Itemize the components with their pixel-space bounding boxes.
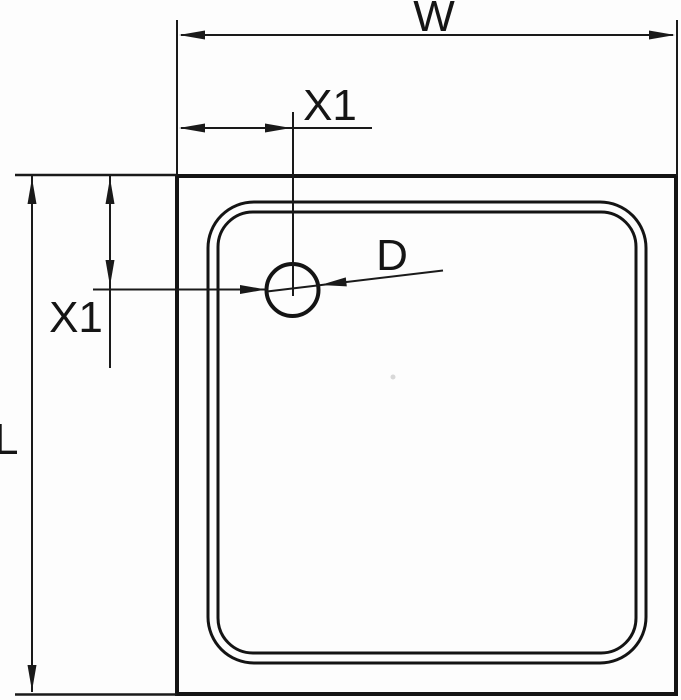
shower-tray-dimension-drawing: W X1 X1 D L [0, 0, 681, 700]
width-label: W [413, 0, 455, 41]
tray-outer-edge [177, 176, 676, 694]
x1-vertical-arrow-up [106, 178, 115, 204]
x1-vertical-arrow-down [106, 260, 115, 286]
tray-inner-wall-inner-line [218, 212, 636, 653]
x1-horizontal-label: X1 [303, 81, 357, 130]
x1-vertical-label: X1 [49, 293, 103, 342]
drain-center-arrow-right [240, 285, 266, 294]
dimension-drawing-canvas: W X1 X1 D L [0, 0, 681, 700]
length-label: L [0, 415, 18, 464]
length-arrow-down [28, 665, 37, 691]
width-arrow-right [649, 31, 675, 40]
diameter-label: D [376, 231, 408, 280]
diameter-leader-arrow [321, 277, 347, 286]
x1-horizontal-arrow-right [265, 124, 291, 133]
length-arrow-up [28, 178, 37, 204]
surface-artifact-dot [391, 375, 396, 380]
width-arrow-left [179, 31, 205, 40]
x1-horizontal-arrow-left [179, 124, 205, 133]
